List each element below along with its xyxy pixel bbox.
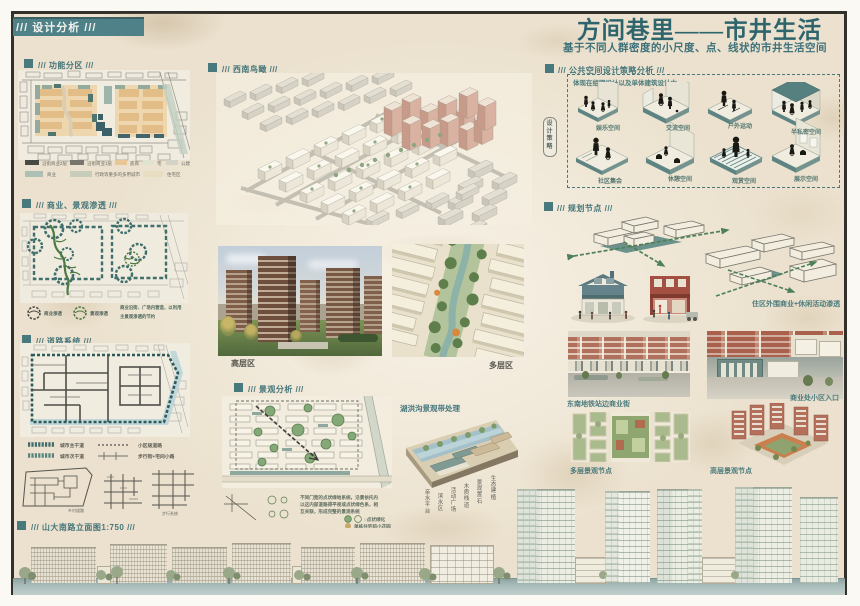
svg-text:商业沿街、广场内营造，以利用: 商业沿街、广场内营造，以利用 — [120, 304, 181, 311]
svg-text:公建: 公建 — [181, 160, 190, 167]
svg-text:展示空间: 展示空间 — [794, 175, 818, 183]
svg-text:以这内部道路得平视或点状绿色系，相: 以这内部道路得平视或点状绿色系，相 — [300, 501, 379, 508]
svg-text:乡村道路: 乡村道路 — [68, 507, 84, 513]
svg-text:不同门宽的点状绿地系统，沿景依托内: 不同门宽的点状绿地系统，沿景依托内 — [300, 494, 379, 501]
svg-text:沿街商业1层: 沿街商业1层 — [87, 160, 113, 167]
svg-text:城市主干道: 城市主干道 — [60, 442, 84, 449]
svg-text:景观渗透: 景观渗透 — [90, 310, 108, 317]
svg-text:互关联，形成完整的景观系统: 互关联，形成完整的景观系统 — [300, 508, 360, 515]
svg-text:观赏空间: 观赏空间 — [732, 177, 756, 185]
svg-text:休憩空间: 休憩空间 — [667, 175, 692, 183]
svg-text:行政等重多的多用城市: 行政等重多的多用城市 — [95, 171, 140, 178]
svg-text:住宅区: 住宅区 — [167, 171, 181, 177]
svg-text:单栋住宅前小花园: 单栋住宅前小花园 — [354, 523, 391, 528]
svg-text:底商: 底商 — [130, 160, 139, 167]
svg-text:步行街+宅间小路: 步行街+宅间小路 — [138, 453, 175, 460]
svg-text:社区集会: 社区集会 — [597, 177, 623, 185]
svg-text:交流空间: 交流空间 — [666, 124, 690, 132]
svg-text:小区级道路: 小区级道路 — [137, 442, 162, 449]
svg-text:步行系统: 步行系统 — [162, 510, 178, 516]
svg-text:半私密空间: 半私密空间 — [791, 128, 821, 136]
svg-text:城市次干道: 城市次干道 — [60, 453, 84, 460]
svg-text:沿街商业2层: 沿街商业2层 — [42, 160, 68, 167]
svg-text:○点状绿化: ○点状绿化 — [364, 516, 386, 523]
svg-text:商业: 商业 — [47, 171, 56, 178]
svg-text:户外运动: 户外运动 — [728, 122, 752, 130]
svg-text:娱乐空间: 娱乐空间 — [596, 124, 620, 132]
svg-text:宅: 宅 — [157, 160, 162, 166]
svg-text:商业渗透: 商业渗透 — [44, 310, 62, 317]
svg-text:主景观渗透的节约: 主景观渗透的节约 — [120, 313, 156, 320]
